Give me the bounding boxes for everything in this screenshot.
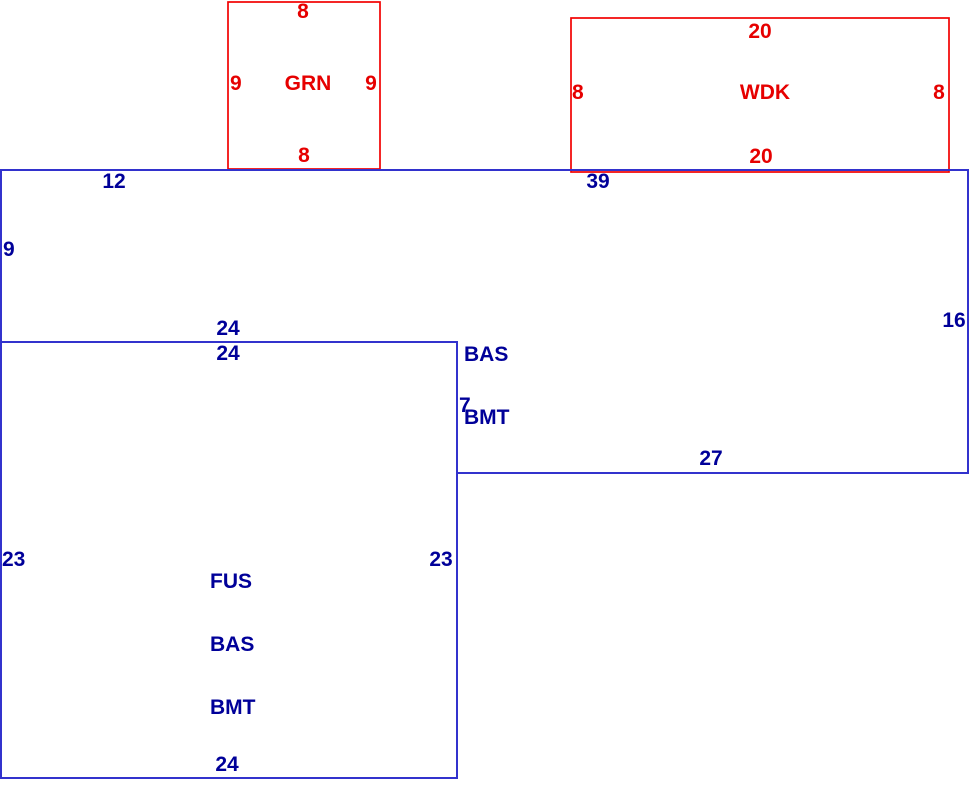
dim-bas-bmt-left: 9 (3, 239, 15, 260)
area-label-bas-bmt-line1: BAS (464, 344, 510, 365)
area-label-fus-bas-bmt-line1: FUS (210, 571, 256, 592)
dim-bas-bmt-step: 7 (459, 395, 471, 416)
area-label-fus-bas-bmt-line3: BMT (210, 697, 256, 718)
dim-fus-right: 23 (429, 549, 452, 570)
dim-wdk-top: 20 (748, 21, 771, 42)
dim-bas-bmt-top-left: 12 (102, 171, 125, 192)
dim-grn-top: 8 (297, 1, 309, 22)
dim-wdk-bottom: 20 (749, 146, 772, 167)
dim-fus-top: 24 (216, 343, 239, 364)
dim-bas-bmt-bottom-right: 27 (699, 448, 722, 469)
dim-fus-bottom: 24 (215, 754, 238, 775)
dim-bas-bmt-top-right: 39 (586, 171, 609, 192)
dim-grn-left: 9 (230, 73, 242, 94)
dim-grn-right: 9 (365, 73, 377, 94)
area-label-fus-bas-bmt-line2: BAS (210, 634, 256, 655)
area-label-wdk: WDK (740, 82, 790, 103)
property-sketch-canvas: 8 9 GRN 9 8 20 8 WDK 8 20 12 39 9 BAS BM… (0, 0, 980, 807)
dim-wdk-left: 8 (572, 82, 584, 103)
area-label-fus-bas-bmt: FUS BAS BMT (210, 529, 256, 760)
area-label-grn: GRN (285, 73, 332, 94)
dim-bas-bmt-inner-bottom: 24 (216, 318, 239, 339)
area-label-bas-bmt-line2: BMT (464, 407, 510, 428)
dim-grn-bottom: 8 (298, 145, 310, 166)
area-label-bas-bmt: BAS BMT (464, 302, 510, 470)
dim-fus-left: 23 (2, 549, 25, 570)
dim-wdk-right: 8 (933, 82, 945, 103)
dim-bas-bmt-right: 16 (942, 310, 965, 331)
